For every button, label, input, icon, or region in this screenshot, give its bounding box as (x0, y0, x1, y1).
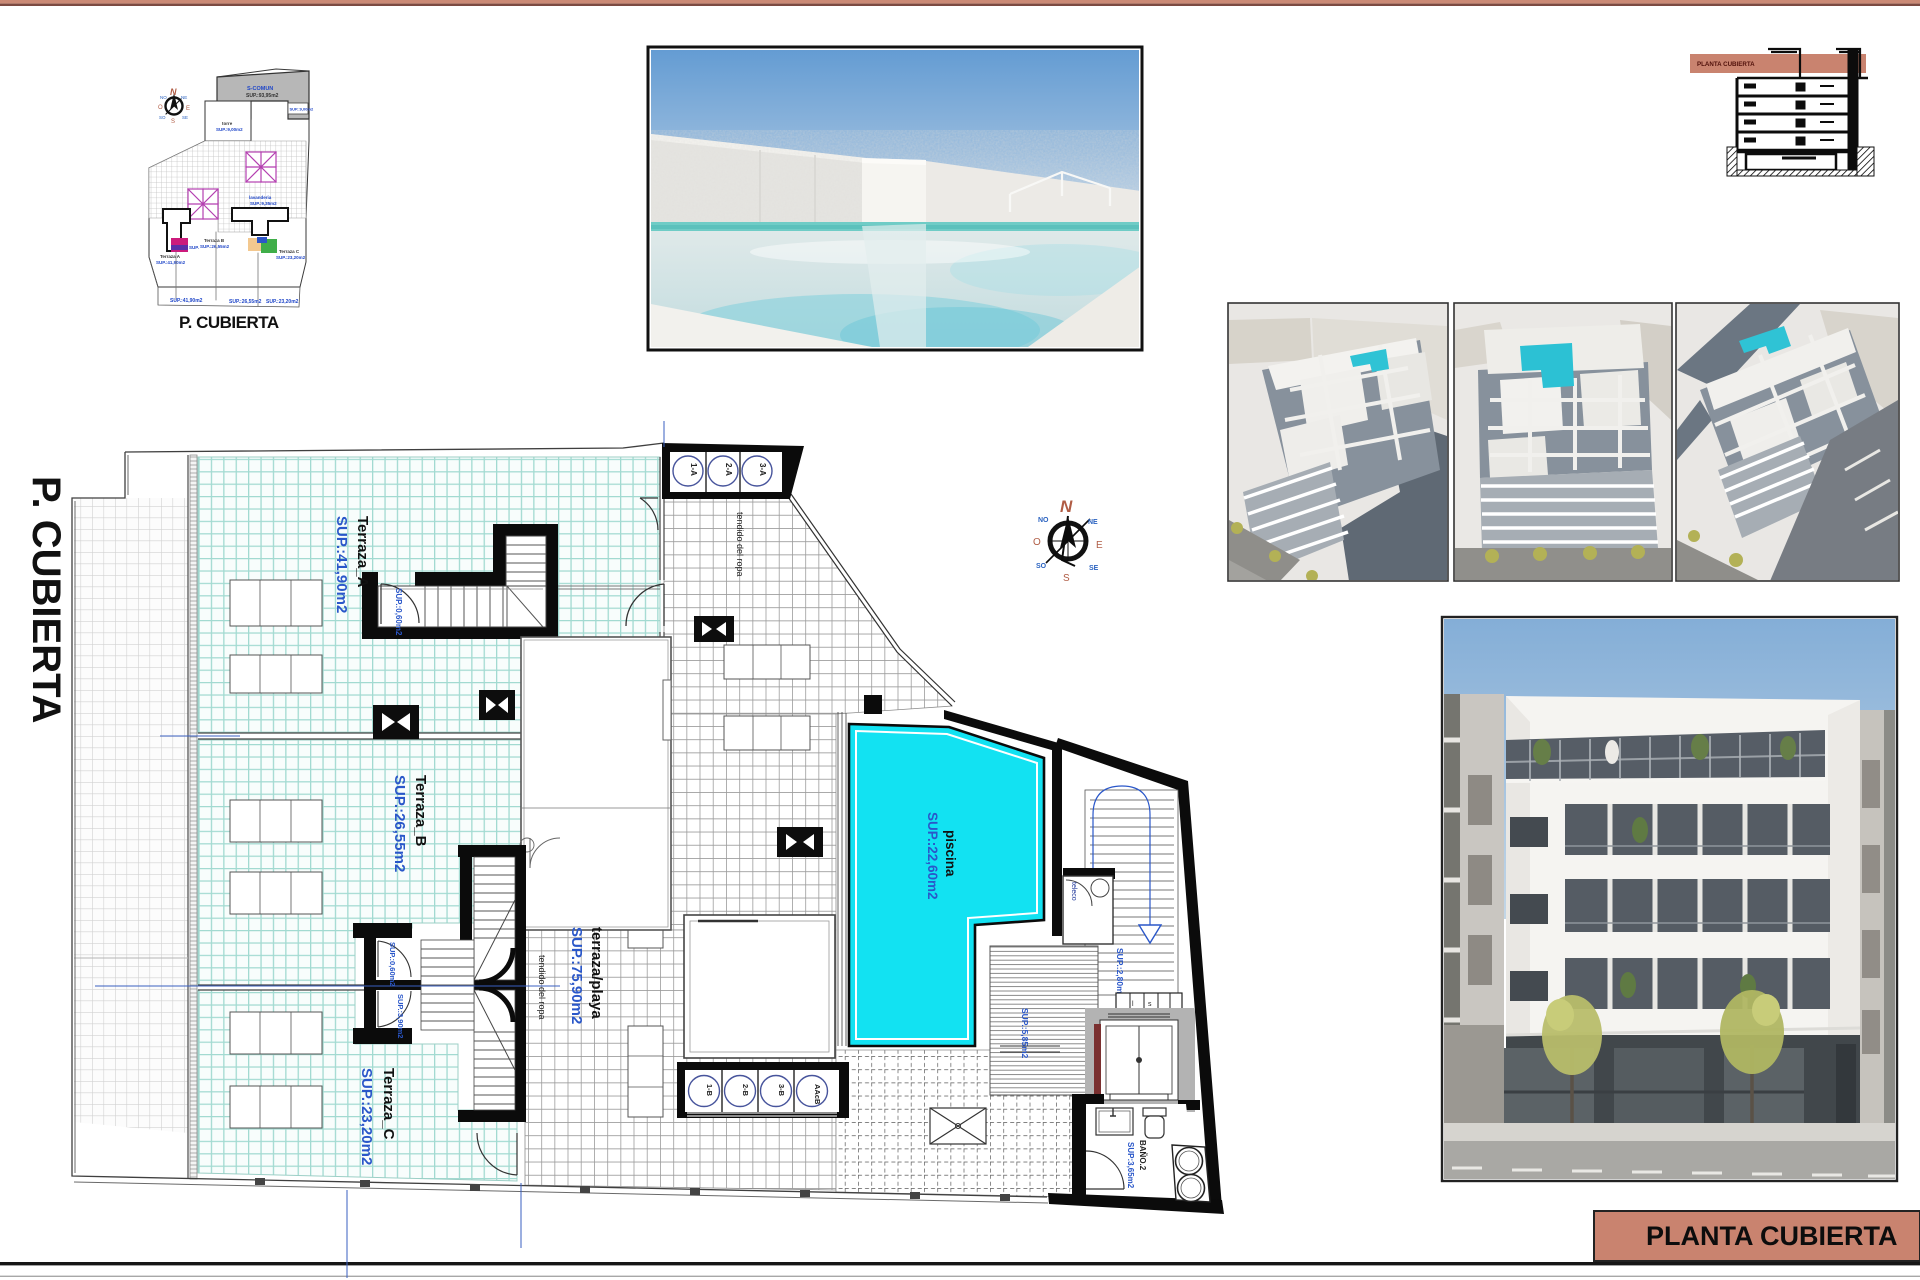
svg-text:lavanderia: lavanderia (249, 195, 272, 200)
svg-text:1-A: 1-A (689, 463, 698, 476)
svg-text:P. CUBIERTA: P. CUBIERTA (179, 313, 279, 332)
svg-text:NO: NO (160, 95, 167, 100)
svg-text:Terraza_A: Terraza_A (354, 516, 371, 588)
svg-text:SUP.:9,00m2: SUP.:9,00m2 (216, 127, 243, 132)
svg-text:NO: NO (1038, 517, 1049, 524)
svg-text:SUP.:23,20m2: SUP.:23,20m2 (276, 255, 306, 260)
svg-text:SUP.:9,00m2: SUP.:9,00m2 (290, 107, 314, 112)
svg-text:S: S (171, 119, 175, 125)
svg-text:SUP.:2,80m2: SUP.:2,80m2 (1115, 948, 1125, 999)
svg-text:tendido del ropa: tendido del ropa (735, 512, 745, 577)
svg-text:SUP:3,65m2: SUP:3,65m2 (1126, 1142, 1135, 1189)
svg-text:terraza/playa: terraza/playa (588, 927, 605, 1019)
svg-text:PLANTA CUBIERTA: PLANTA CUBIERTA (1697, 61, 1755, 68)
svg-text:SE: SE (1089, 565, 1099, 572)
svg-text:SUP.:26,55m2: SUP.:26,55m2 (200, 244, 230, 249)
svg-text:SUP.:26,55m2: SUP.:26,55m2 (229, 299, 262, 305)
svg-text:P. CUBIERTA: P. CUBIERTA (24, 476, 68, 723)
svg-text:2-B: 2-B (741, 1084, 750, 1097)
svg-text:SUP.:75,90m2: SUP.:75,90m2 (568, 927, 585, 1024)
svg-text:3-B: 3-B (777, 1084, 786, 1097)
svg-text:Terraza B: Terraza B (204, 238, 225, 243)
svg-text:piscina: piscina (943, 830, 958, 877)
svg-text:SO: SO (159, 115, 166, 120)
svg-text:SUP.:26,55m2: SUP.:26,55m2 (391, 775, 408, 872)
svg-text:BAÑO.2: BAÑO.2 (1138, 1140, 1147, 1171)
svg-text:SUP.:23,20m2: SUP.:23,20m2 (358, 1068, 375, 1165)
svg-text:SUP.:41,90m2: SUP.:41,90m2 (156, 260, 186, 265)
svg-text:tendido del ropa: tendido del ropa (537, 955, 547, 1020)
svg-text:AAcB: AAcB (813, 1084, 822, 1105)
svg-text:1-B: 1-B (705, 1084, 714, 1097)
svg-text:3-A: 3-A (758, 463, 767, 476)
svg-text:N: N (1060, 497, 1073, 516)
svg-text:SUP.:23,20m2: SUP.:23,20m2 (266, 299, 299, 305)
svg-text:Terraza A: Terraza A (160, 254, 181, 259)
svg-text:NE: NE (1088, 519, 1098, 526)
svg-text:SUP.:41,90m2: SUP.:41,90m2 (170, 298, 203, 304)
svg-text:SUP.:5,85m2: SUP.:5,85m2 (1020, 1008, 1030, 1059)
svg-text:Terraza_B: Terraza_B (412, 775, 429, 847)
svg-text:s: s (1148, 1001, 1152, 1008)
svg-text:SO: SO (1036, 563, 1047, 570)
svg-text:PLANTA CUBIERTA: PLANTA CUBIERTA (1646, 1221, 1897, 1251)
svg-text:SUP.:22,60m2: SUP.:22,60m2 (925, 812, 940, 900)
svg-text:O: O (158, 105, 163, 111)
svg-text:Terraza C: Terraza C (279, 249, 300, 254)
svg-text:N: N (170, 87, 177, 97)
svg-text:torre: torre (222, 121, 233, 126)
svg-text:S-COMUN: S-COMUN (247, 86, 273, 92)
svg-text:SE: SE (182, 115, 188, 120)
svg-text:SUP.:0,60m2: SUP.:0,60m2 (388, 942, 397, 986)
svg-text:SUP.:41,90m2: SUP.:41,90m2 (333, 516, 350, 613)
svg-text:teleco: teleco (1070, 882, 1077, 901)
svg-text:E: E (186, 106, 190, 112)
svg-text:S: S (1063, 573, 1070, 584)
svg-text:SUP.: SUP. (189, 245, 199, 250)
svg-text:SUP.:3,90m2: SUP.:3,90m2 (396, 994, 405, 1038)
svg-text:O: O (1033, 537, 1041, 548)
svg-text:Terraza_C: Terraza_C (380, 1068, 397, 1140)
svg-text:2-A: 2-A (724, 463, 733, 476)
svg-text:SUP.:0,60m2: SUP.:0,60m2 (394, 588, 403, 636)
svg-text:SUP.:9,35m2: SUP.:9,35m2 (250, 201, 277, 206)
svg-text:E: E (1096, 540, 1103, 551)
svg-text:NE: NE (181, 95, 187, 100)
svg-text:SUP.:93,95m2: SUP.:93,95m2 (246, 93, 279, 99)
